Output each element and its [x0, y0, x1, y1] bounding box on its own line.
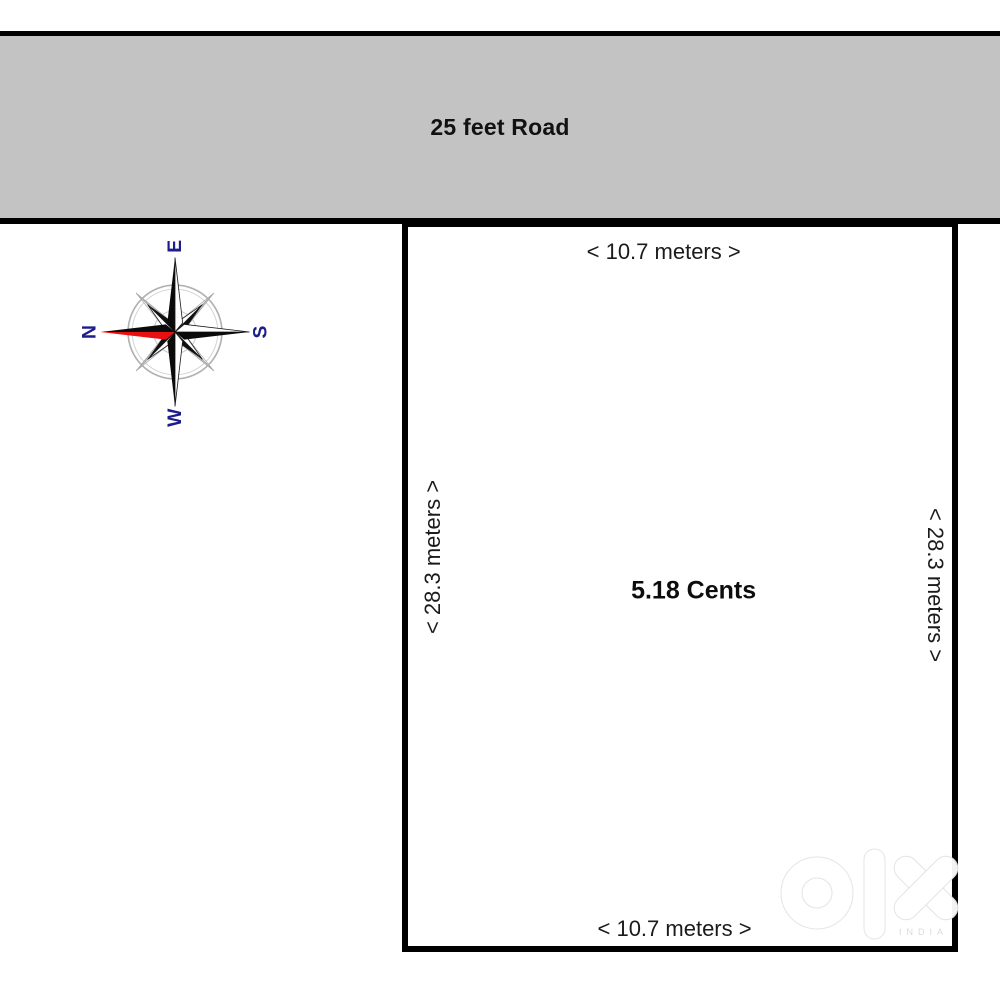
compass-rose-icon: N E S W: [73, 230, 277, 434]
site-plan-diagram: 25 feet Road: [0, 0, 1000, 1000]
olx-x-icon: [889, 851, 963, 925]
south-arm: [175, 324, 249, 339]
road-label: 25 feet Road: [430, 114, 569, 141]
plot-area-label: 5.18 Cents: [631, 576, 756, 605]
olx-watermark: INDIA: [775, 845, 970, 945]
north-needle: [101, 324, 175, 339]
dimension-label-right: < 28.3 meters >: [922, 508, 948, 662]
watermark-country-label: INDIA: [899, 927, 948, 937]
dimension-label-bottom: < 10.7 meters >: [598, 916, 752, 942]
west-arm: [167, 332, 182, 406]
compass-letter-east: E: [164, 240, 186, 253]
road-strip: 25 feet Road: [0, 31, 1000, 224]
east-arm: [167, 258, 182, 332]
dimension-label-top: < 10.7 meters >: [587, 239, 741, 265]
compass-letter-north: N: [78, 325, 100, 339]
compass-letter-west: W: [164, 408, 186, 427]
compass-letter-south: S: [250, 325, 272, 338]
compass-cardinal-arms: [101, 258, 250, 407]
dimension-label-left: < 28.3 meters >: [420, 480, 446, 634]
olx-l-icon: [864, 849, 885, 939]
plot-outline: < 10.7 meters > < 10.7 meters > < 28.3 m…: [402, 221, 958, 952]
